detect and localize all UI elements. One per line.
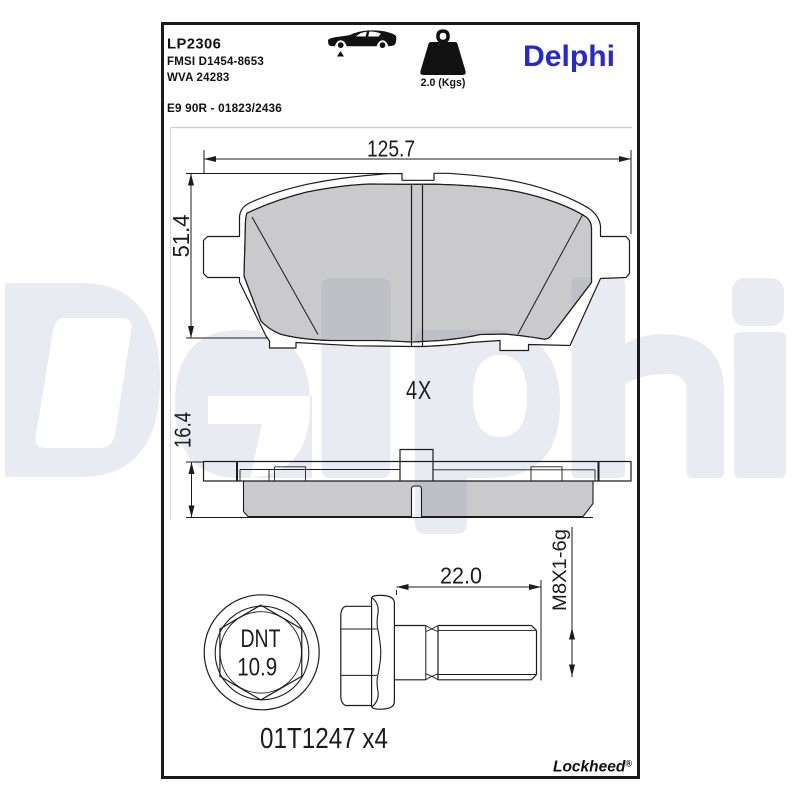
svg-text:M8X1-6g: M8X1-6g: [550, 529, 571, 611]
svg-text:E9 90R - 01823/2436: E9 90R - 01823/2436: [167, 102, 282, 115]
svg-text:Lockheed®: Lockheed®: [553, 759, 632, 776]
svg-text:22.0: 22.0: [440, 563, 482, 589]
svg-text:10.9: 10.9: [237, 653, 277, 681]
svg-text:51.4: 51.4: [168, 214, 194, 257]
svg-text:FMSI D1454-8653: FMSI D1454-8653: [167, 56, 264, 68]
svg-text:DNT: DNT: [241, 625, 281, 653]
svg-text:2.0 (Kgs): 2.0 (Kgs): [421, 77, 466, 89]
svg-text:01T1247 x4: 01T1247 x4: [260, 723, 388, 755]
svg-text:WVA 24283: WVA 24283: [167, 72, 230, 84]
svg-text:LP2306: LP2306: [167, 37, 221, 53]
svg-text:Delphi: Delphi: [523, 40, 615, 73]
svg-text:4X: 4X: [406, 375, 432, 405]
svg-text:125.7: 125.7: [367, 136, 415, 162]
svg-text:16.4: 16.4: [170, 412, 196, 448]
